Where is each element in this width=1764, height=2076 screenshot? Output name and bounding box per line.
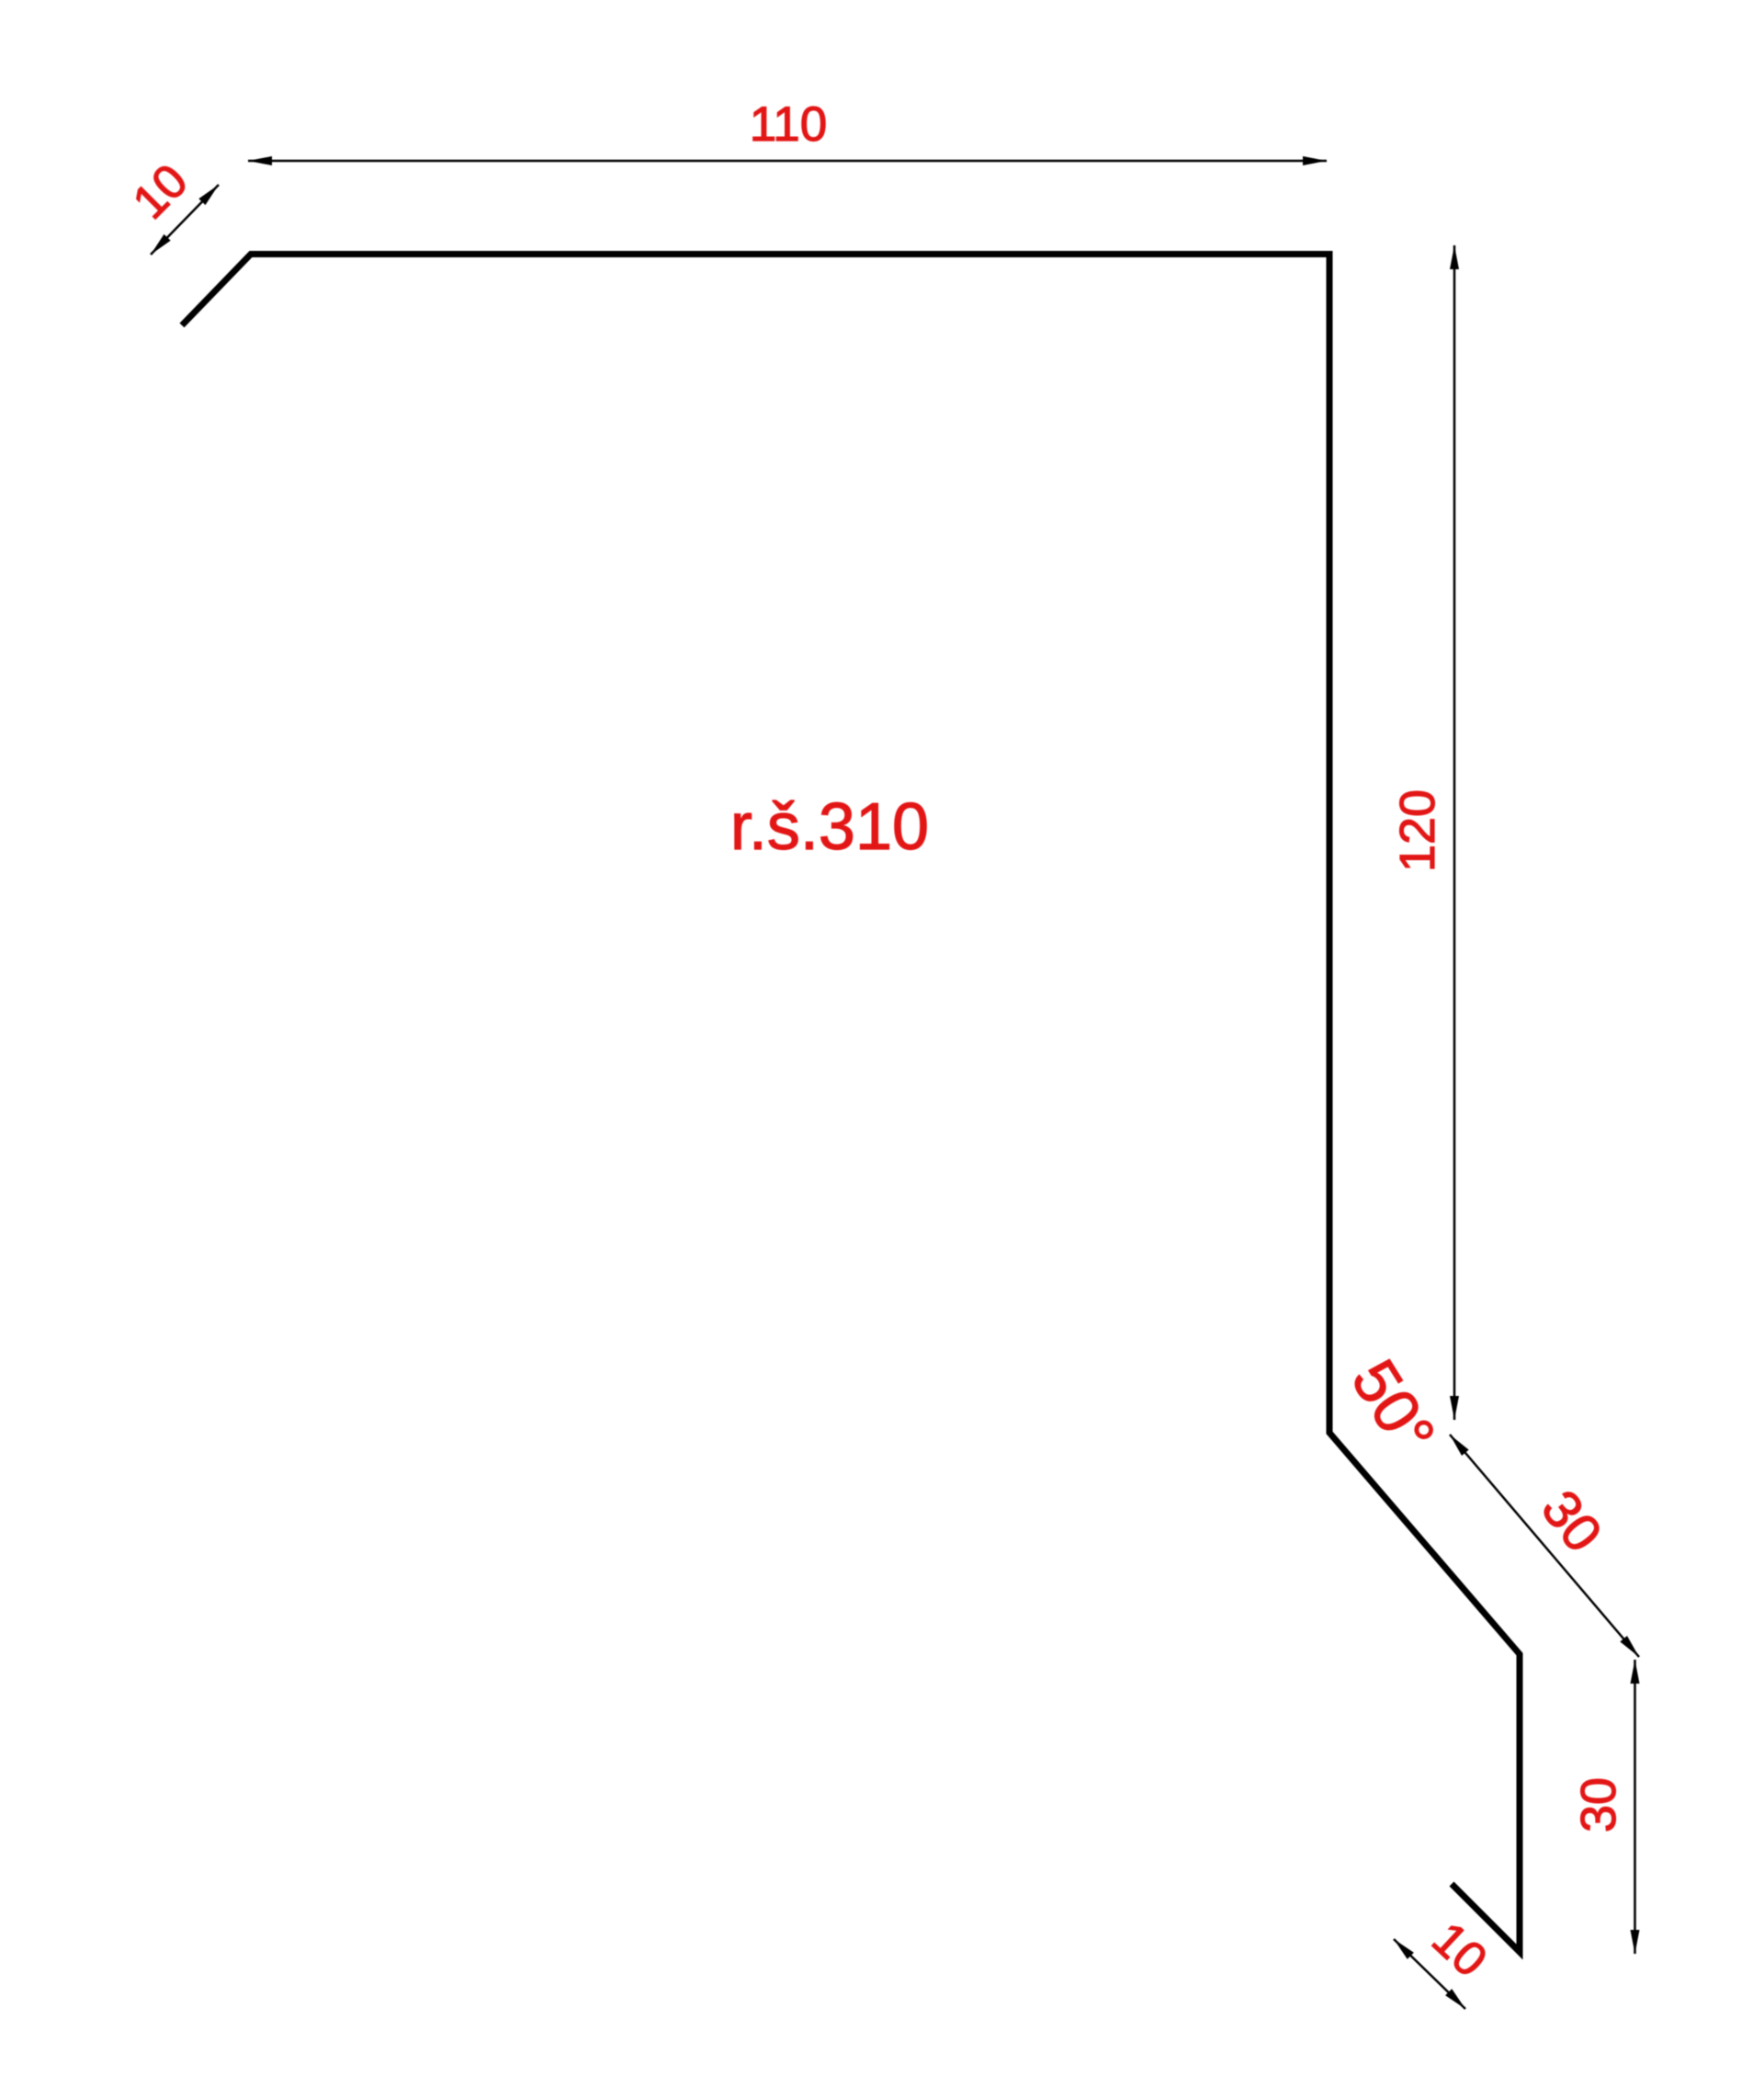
- svg-text:30: 30: [1530, 1480, 1613, 1563]
- svg-text:120: 120: [1390, 789, 1445, 872]
- svg-text:50°: 50°: [1338, 1348, 1449, 1467]
- svg-text:r.š.310: r.š.310: [730, 790, 929, 864]
- svg-text:30: 30: [1571, 1777, 1626, 1832]
- svg-text:110: 110: [750, 97, 828, 152]
